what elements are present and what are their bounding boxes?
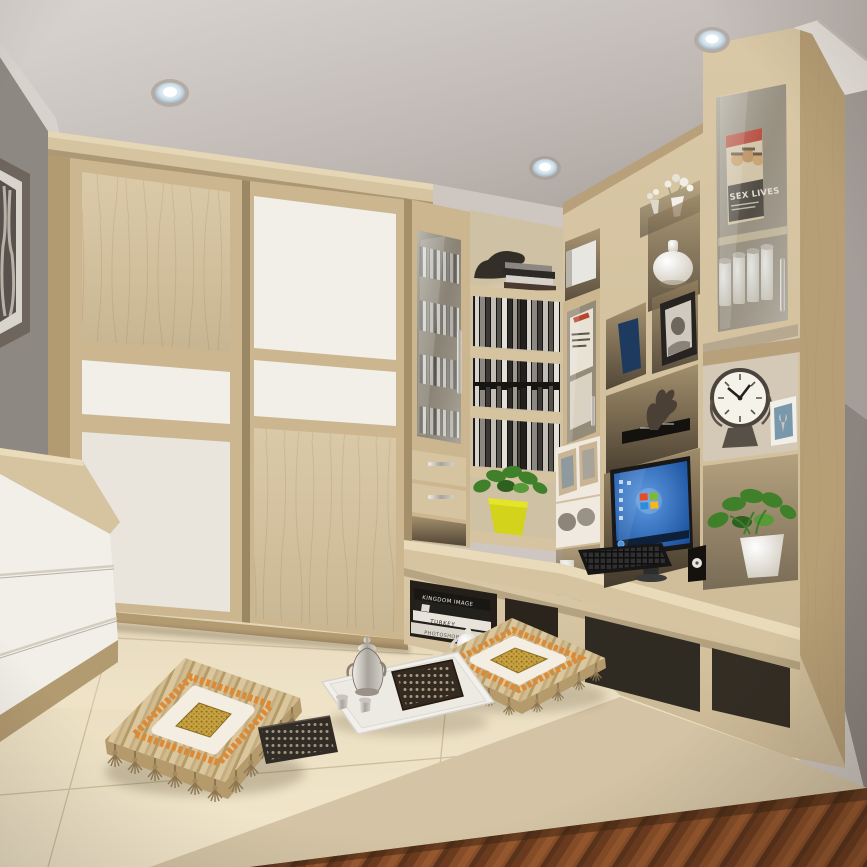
bedroom-photo: SEX LIVES — [0, 0, 867, 867]
vignette — [0, 0, 867, 867]
